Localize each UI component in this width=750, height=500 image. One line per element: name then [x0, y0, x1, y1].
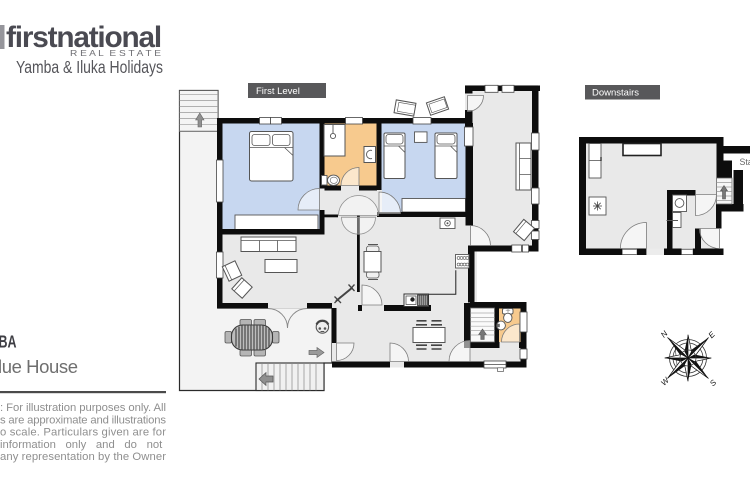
svg-text:lue House: lue House — [0, 356, 78, 377]
svg-text:Downstairs: Downstairs — [592, 88, 639, 99]
svg-text:o scale. Particulars given are: o scale. Particulars given are for — [0, 427, 166, 439]
svg-text:information only and do not: information only and do not — [0, 439, 163, 451]
svg-text:Sta: Sta — [740, 157, 750, 167]
svg-text:: For illustration purposes on: : For illustration purposes only. All — [0, 402, 166, 414]
svg-text:s are approximate and illustra: s are approximate and illustrations — [0, 414, 166, 426]
svg-text:Yamba & Iluka Holidays: Yamba & Iluka Holidays — [16, 57, 163, 77]
svg-text:BA: BA — [0, 332, 17, 352]
svg-text:any representation by the Owne: any representation by the Owner — [0, 451, 166, 463]
svg-text:First Level: First Level — [256, 86, 300, 97]
